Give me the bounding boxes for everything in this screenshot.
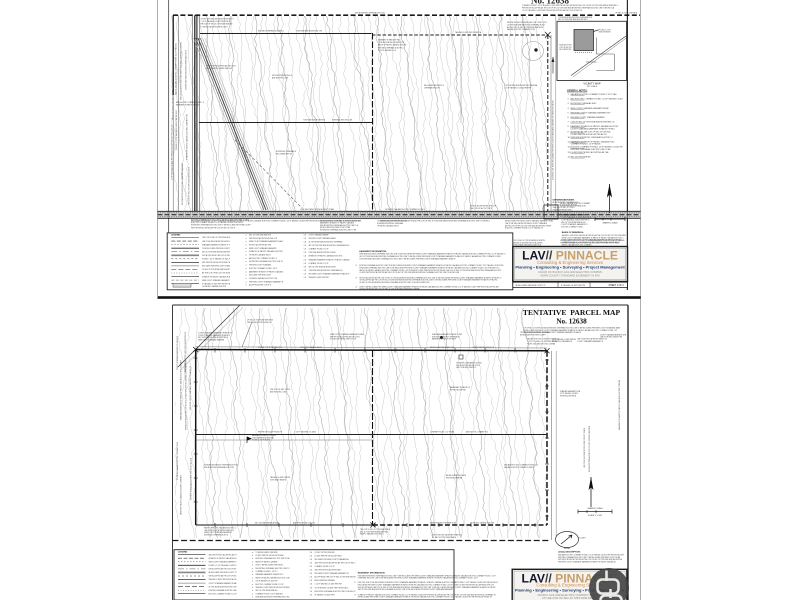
svg-text:o: o (245, 271, 246, 273)
svg-text:o: o (245, 285, 246, 287)
svg-text:ELECTRIC COMPANY FOUND 1: ELECTRIC COMPANY FOUND 1 (561, 226, 583, 229)
svg-text:PER PM 9097 ACCEPTED AS THE CO: PER PM 9097 ACCEPTED AS THE COR O (206, 65, 237, 68)
svg-text:T29S R26E MDB M: T29S R26E MDB M (270, 480, 286, 482)
svg-text:SEC 26 T29S R26E MDB M E: SEC 26 T29S R26E MDB M E (256, 590, 279, 592)
svg-text:LS 4825 PER PM 9097 ACCE: LS 4825 PER PM 9097 ACCE (472, 346, 495, 349)
svg-text:ELECTRIC COMPANY FOUND 1 1/2 I: ELECTRIC COMPANY FOUND 1 1/2 IP (256, 583, 285, 586)
svg-text:BE RELOCATED PER KERN: BE RELOCATED PER KERN (446, 474, 467, 477)
svg-text:IN FAVOR OF PACIFIC GAS AND EL: IN FAVOR OF PACIFIC GAS AND ELECTRIC (249, 250, 284, 253)
svg-text:TAGGED LS 4825 PER PM: TAGGED LS 4825 PER PM (309, 276, 329, 279)
svg-text:PER KERN COUNTY STANDARD EASEM: PER KERN COUNTY STANDARD EASEMENT IN (249, 280, 284, 283)
svg-text:RELOCATED PER: RELOCATED PER (559, 48, 572, 51)
svg-text:M EXISTING OVERHEAD ELECTRIC L: M EXISTING OVERHEAD ELECTRIC LINE TO BE (320, 228, 357, 231)
svg-text:RELOCATED PER KERN COUNTY STAN: RELOCATED PER KERN COUNTY STANDARD EA (315, 558, 350, 561)
svg-text:NO SCALE: NO SCALE (587, 85, 598, 88)
svg-text:AS THE COR OF SEC 26 T29S R26E: AS THE COR OF SEC 26 T29S R26E MDB M (542, 596, 598, 600)
svg-text:EXISTING OVERHEA: EXISTING OVERHEA (446, 477, 463, 480)
svg-text:STANDARD EASEMENT IN FAVOR OF: STANDARD EASEMENT IN FAVOR OF PACIFIC GA… (309, 258, 351, 261)
svg-text:SEC 26 T29S R26E MDB M EXISTIN: SEC 26 T29S R26E MDB M EXISTING OVERHEAD… (358, 588, 454, 591)
svg-text:9097 ACCEPTED AS THE COR OF SE: 9097 ACCEPTED AS THE COR OF SEC (209, 568, 238, 571)
svg-text:COUNTY STANDARD EASEMENT IN FA: COUNTY STANDARD EASEMENT IN FAVOR O (176, 336, 179, 370)
svg-text:ELECTRIC COMPANY FOUND 1 1/2 I: ELECTRIC COMPANY FOUND 1 1/2 IP (209, 592, 238, 595)
svg-text:DETAIL: DETAIL (564, 547, 570, 550)
svg-text:4825 PER PM 9097 ACCEPTED AS T: 4825 PER PM 9097 ACCEPTED AS T (315, 569, 343, 572)
svg-text:PACIFIC GAS AND ELECTRIC C: PACIFIC GAS AND ELECTRIC C (360, 533, 385, 536)
svg-text:Planning • Engineering • Surve: Planning • Engineering • Surveying • Pro… (515, 265, 625, 270)
svg-text:STANDARD EASEMENT IN FAVOR OF: STANDARD EASEMENT IN FAVOR OF P (256, 573, 285, 576)
svg-text:SHEET 1 OF 2: SHEET 1 OF 2 (609, 285, 625, 287)
svg-text:TO BE RELOCATED PER KERN: TO BE RELOCATED PER KERN (256, 551, 279, 554)
svg-text:T29S R26E MDB M EXISTING OVERH: T29S R26E MDB M EXISTING OVERH (309, 252, 337, 254)
svg-text:9097 ACCEPTED AS THE COR OF SE: 9097 ACCEPTED AS THE COR OF SEC (209, 575, 238, 578)
svg-text:o: o (252, 577, 253, 579)
svg-text:OWNER/SUBDIVIDER:: OWNER/SUBDIVIDER: (553, 200, 575, 202)
svg-text:FAVOR OF PACIFIC GAS AND ELECT: FAVOR OF PACIFIC GAS AND ELECTR (172, 89, 175, 120)
svg-text:OF PACIFIC GAS AND ELECTRIC CO: OF PACIFIC GAS AND ELECTRIC COM (249, 277, 277, 280)
svg-text:TAGGED LS 4825 PER PM 9097 A: TAGGED LS 4825 PER PM 9097 A (455, 31, 482, 34)
svg-text:o: o (252, 568, 253, 570)
svg-text:COMPANY FOUND 1 1/2 IP: COMPANY FOUND 1 1/2 IP (315, 565, 336, 568)
svg-text:o: o (245, 261, 246, 263)
svg-text:PER PM 9097 ACCEPTED AS TH: PER PM 9097 ACCEPTED AS TH (247, 321, 272, 324)
svg-text:IN FAVOR OF PACIFIC GAS AND EL: IN FAVOR OF PACIFIC GAS AND ELE (209, 557, 238, 560)
svg-text:MDB M EXISTING OVERHEAD ELECTR: MDB M EXISTING OVERHEAD ELECTRIC (355, 12, 386, 15)
svg-text:RELOCATED PER KERN CO: RELOCATED PER KERN CO (424, 84, 444, 87)
svg-text:o: o (245, 265, 246, 267)
svg-text:LEGEND:: LEGEND: (171, 235, 181, 237)
svg-text:EASEMENT INFORMATION:: EASEMENT INFORMATION: (359, 250, 387, 253)
svg-text:No. 12638: No. 12638 (556, 318, 587, 326)
svg-text:o: o (252, 581, 253, 583)
svg-text:PER PM 9097 ACCEPTED AS TH: PER PM 9097 ACCEPTED AS TH (258, 431, 283, 434)
svg-text:o: o (245, 281, 246, 283)
svg-text:FOUND 1 1/2 IP TAGGE: FOUND 1 1/2 IP TAGGE (252, 439, 271, 442)
svg-text:SEC 26 T29S R26E MDB M EXISTIN: SEC 26 T29S R26E MDB M EXISTING (202, 251, 231, 253)
svg-text:o: o (252, 590, 253, 592)
svg-text:VICINITY MAP: VICINITY MAP (583, 81, 601, 85)
svg-text:26 T29S R26E MDB M EXISTING OV: 26 T29S R26E MDB M EXISTING OVE (209, 586, 238, 588)
svg-text:R26E MDB M EXISTING OVERHEAD E: R26E MDB M EXISTING OVERHEAD ELECTRIC (256, 596, 291, 599)
svg-text:PER KERN COUNTY STANDARD EASEM: PER KERN COUNTY STANDARD EASEMENT IN FAV… (309, 273, 351, 276)
svg-text:ELECTRIC LINE TO BE RELOCATED: ELECTRIC LINE TO BE RELOCATED PER KERN C… (552, 99, 555, 180)
svg-text:GRAPHIC SCALE: GRAPHIC SCALE (587, 507, 603, 510)
svg-text:EASEMENT IN FAVOR OF: EASEMENT IN FAVOR OF (450, 386, 471, 389)
svg-text:OVERHEAD ELECTRIC LINE TO BE R: OVERHEAD ELECTRIC LINE TO BE RELOCATED P… (358, 577, 479, 580)
svg-text:KERN COUNTY STANDARD EASEMENT: KERN COUNTY STANDARD EASEMENT I (202, 279, 230, 282)
svg-text:OF PACIFIC GAS AND ELECTRIC CO: OF PACIFIC GAS AND ELECTRIC COMPANY FOUN… (385, 208, 425, 211)
svg-text:PER PM 9097 ACCEPTED AS THE CO: PER PM 9097 ACCEPTED AS THE COR OF SEC 2… (191, 226, 236, 229)
svg-text:AND ELECTRIC COMPANY FOUND 1 1: AND ELECTRIC COMPANY FOUND 1 1/ (176, 101, 204, 104)
svg-text:OF PACIFIC GAS AND ELECT: OF PACIFIC GAS AND ELECT (249, 254, 272, 257)
svg-text:COMPANY FOUND 1 1/2 IP TAG: COMPANY FOUND 1 1/2 IP TAG (430, 431, 455, 434)
svg-text:IP TAGGED LS 4825 PER PM 9097: IP TAGGED LS 4825 PER PM 9097 A (202, 282, 231, 285)
svg-text:9097 ACCEPTED AS THE COR OF SE: 9097 ACCEPTED AS THE COR OF SEC 26 T29S … (588, 425, 591, 472)
svg-text:o: o (252, 574, 253, 576)
svg-text:OVERHEAD ELECTRIC LINE TO BE R: OVERHEAD ELECTRIC LINE TO BE RELOCATED P… (184, 331, 187, 372)
svg-text:LINE TO BE RELOCATED P: LINE TO BE RELOCATED P (456, 366, 477, 369)
svg-text:9097 ACCEPTED AS THE COR OF: 9097 ACCEPTED AS THE COR OF (330, 338, 357, 341)
svg-text:9097 ACCEPTED AS THE COR OF SE: 9097 ACCEPTED AS THE COR OF SEC (202, 254, 231, 257)
svg-text:PER KERN COUNTY STANDARD EASEM: PER KERN COUNTY STANDARD EASEMENT IN FAV… (558, 561, 616, 564)
svg-text:EXISTING OVERHEAD ELECTRIC LIN: EXISTING OVERHEAD ELECTRIC LINE TO BE (256, 557, 291, 560)
svg-text:OF SEC 26 T29S R26E MDB M: OF SEC 26 T29S R26E MDB M (432, 537, 456, 539)
svg-text:TO BE RELOCATED PER KERN COUNT: TO BE RELOCATED PER KERN COUNT (201, 25, 229, 28)
svg-text:1 1/2 IP TAGGED LS 4: 1 1/2 IP TAGGED LS 4 (378, 49, 396, 52)
svg-text:COMPANY FOUND 1 1/2 IP TAGGE: COMPANY FOUND 1 1/2 IP TAGGE (571, 143, 602, 146)
svg-text:PM 9097 ACCEPTED: PM 9097 ACCEPTED (450, 389, 467, 392)
svg-text:1/2 IP TAGGED LS 4825 PER PM 9: 1/2 IP TAGGED LS 4825 PER PM 9097 ACC (315, 586, 350, 589)
svg-text:ELECTRIC COMPANY FOUND 1 1/2 I: ELECTRIC COMPANY FOUND 1 1/2 IP TAGGED L… (505, 227, 544, 230)
svg-text:o: o (245, 251, 246, 253)
svg-text:SEC 26 T29S R26E MD: SEC 26 T29S R26E MD (571, 157, 591, 159)
svg-text:EASEMENT IN FAVOR OF PACIF: EASEMENT IN FAVOR OF PACIF (432, 338, 457, 341)
svg-text:9097 ACCEPTED AS THE C: 9097 ACCEPTED AS THE C (553, 208, 574, 211)
svg-text:MDB M EXISTING OVERHEA: MDB M EXISTING OVERHEA (315, 579, 336, 582)
svg-text:EASEMENT IN FAVOR OF PACIFIC G: EASEMENT IN FAVOR OF PACIFIC GAS AND (249, 270, 284, 273)
svg-text:AND ELECTRIC COMPANY FOU: AND ELECTRIC COMPANY FOU (466, 431, 489, 434)
svg-text:EXISTING OVERHEAD ELECTRIC LIN: EXISTING OVERHEAD ELECTRIC LINE TO BE RE… (190, 457, 193, 500)
svg-text:o: o (252, 593, 253, 595)
svg-text:COR OF SEC 26 T29S R26E MDB M: COR OF SEC 26 T29S R26E MDB M EXISTING O… (571, 122, 616, 124)
svg-text:GAS AND ELECTRIC COMPANY FOUND: GAS AND ELECTRIC COMPANY FOUND 1 (504, 466, 534, 469)
svg-text:TAGGED LS 4825 PER PM 9097 ACC: TAGGED LS 4825 PER PM 9097 ACCE (209, 578, 238, 581)
svg-text:PER KERN COUNTY STANDARD EASEM: PER KERN COUNTY STANDARD EASEMENT IN FAV… (189, 365, 192, 410)
svg-text:ENGINEER/SURVEYOR:: ENGINEER/SURVEYOR: (561, 215, 585, 217)
svg-text:PER PM 9097 ACCEPTED AS THE CO: PER PM 9097 ACCEPTED AS THE COR (249, 237, 278, 240)
svg-text:PM 9097 ACCEPTED AS THE: PM 9097 ACCEPTED AS THE (249, 243, 272, 246)
svg-text:o: o (252, 561, 253, 563)
svg-text:9097 ACCEPTED AS THE COR OF SE: 9097 ACCEPTED AS THE COR OF SEC 26 T29S … (359, 288, 420, 291)
svg-text:LEGAL DESCRIPTION:: LEGAL DESCRIPTION: (558, 551, 581, 554)
svg-text:o: o (245, 238, 246, 240)
svg-text:T29S R26E MDB M EXISTING OVERH: T29S R26E MDB M EXISTING OVERHEAD ELE (309, 269, 344, 272)
svg-text:OF SEC 26 T29S R26E MD: OF SEC 26 T29S R26E MD (315, 552, 336, 554)
svg-text:o: o (252, 571, 253, 573)
svg-text:IN FAVOR OF PACIFIC GAS AND EL: IN FAVOR OF PACIFIC GAS AND ELE (202, 275, 231, 278)
svg-text:OF PACIFIC GAS AND ELECT: OF PACIFIC GAS AND ELECT (300, 346, 323, 349)
svg-text:OF PACIFIC GAS AND ELECTRI: OF PACIFIC GAS AND ELECTRI (202, 285, 226, 288)
svg-text:COUNTY STANDARD EASEME: COUNTY STANDARD EASEME (309, 233, 330, 236)
svg-text:M EXISTING OVERHEAD E: M EXISTING OVERHEAD E (276, 150, 297, 153)
svg-text:o: o (252, 555, 253, 557)
svg-text:KERN COUNTY STANDARD EASEMENT: KERN COUNTY STANDARD EASEMENT IN FAV (540, 273, 600, 277)
svg-text:TAGGED LS 4825 PER PM: TAGGED LS 4825 PER PM (270, 476, 290, 479)
svg-text:IN FAVOR OF PACIFIC GAS AND EL: IN FAVOR OF PACIFIC GAS AND ELECTRIC COM… (186, 113, 189, 160)
svg-text:ELECTRIC COMPANY FOUND 1 1/2 I: ELECTRIC COMPANY FOUND 1 1/2 IP TAGGED L… (191, 221, 243, 224)
svg-text:COUNTY STANDARD EASEMENT IN FA: COUNTY STANDARD EASEMENT IN FAV (209, 582, 238, 585)
svg-text:PM 9097 ACCEPTED A: PM 9097 ACCEPTED A (560, 394, 577, 397)
svg-text:LS 4825 PER PM 9097 ACCEPTED A: LS 4825 PER PM 9097 ACCEPTED AS (256, 554, 285, 557)
svg-text:STANDARD EASEMENT IN FAVOR OF: STANDARD EASEMENT IN FAVOR OF P (202, 243, 231, 246)
svg-text:AND ELECTRIC COM: AND ELECTRIC COM (272, 77, 288, 80)
svg-text:AS THE COR OF SEC 26 T29S R26E: AS THE COR OF SEC 26 T29S R26E (202, 272, 231, 275)
svg-text:OF SEC 26 T29S R26E MDB M EXIS: OF SEC 26 T29S R26E MDB M EXIST (202, 269, 231, 271)
svg-text:LS 4825 PER PM 9097 ACCEPTED A: LS 4825 PER PM 9097 ACCEPTED A (315, 554, 343, 557)
svg-text:COMPANY FOUND 1 1/2 IP T: COMPANY FOUND 1 1/2 IP T (256, 570, 279, 573)
svg-text:COUNTY STANDARD EASEMENT IN: COUNTY STANDARD EASEMENT IN (577, 340, 604, 343)
svg-text:26 T29S R26E MDB M EXISTING OV: 26 T29S R26E MDB M EXISTING OVERHEAD ELE… (185, 49, 188, 90)
svg-text:FAVOR OF PACIFIC GAS AND ELECT: FAVOR OF PACIFIC GAS AND ELECTRIC COM (256, 576, 290, 579)
svg-text:o: o (252, 552, 253, 554)
svg-text:T29S R26E MDB M EXISTING: T29S R26E MDB M EXISTING (303, 120, 326, 122)
svg-text:OF SEC 26 T29S R26E MDB: OF SEC 26 T29S R26E MDB (615, 13, 638, 15)
svg-text:T29S R26E MDB M EXISTING OVERH: T29S R26E MDB M EXISTING OVERHEAD ELECTR… (359, 257, 456, 260)
svg-text:OVERHEAD ELECTRIC LINE: OVERHEAD ELECTRIC LINE (332, 119, 353, 122)
svg-text:FAVOR OF PACIFIC GAS AND ELECT: FAVOR OF PACIFIC GAS AND ELECTR (378, 44, 407, 47)
svg-text:MDB M EXISTING OVERHEAD ELECTR: MDB M EXISTING OVERHEAD ELECTRIC (204, 466, 235, 469)
svg-text:THE COR OF SEC 26 T29S R26E MD: THE COR OF SEC 26 T29S R26E MDB (202, 237, 231, 239)
svg-text:1/2 IP TAGGED LS 4825 PE: 1/2 IP TAGGED LS 4825 PE (256, 580, 279, 583)
svg-text:PACIFIC GAS AND ELECTRIC COMPA: PACIFIC GAS AND ELECTRIC COMPANY FOUND 1… (175, 42, 178, 95)
svg-text:o: o (245, 268, 246, 270)
svg-text:RELOCATED PER KE: RELOCATED PER KE (276, 153, 293, 156)
svg-text:o: o (252, 597, 253, 599)
svg-text:LEGEND:: LEGEND: (178, 552, 188, 554)
svg-text:COUNTY STANDARD EASEMENT IN FA: COUNTY STANDARD EASEMENT IN FAVOR OF PAC… (571, 128, 615, 131)
svg-text:MDB M EXISTING: MDB M EXISTING (599, 32, 612, 34)
svg-text:FAVOR OF PACIFIC GAS AND ELECT: FAVOR OF PACIFIC GAS AND ELECTRIC COMPAN… (180, 474, 183, 515)
svg-text:THE COR OF SEC 26 T29S R26E MD: THE COR OF SEC 26 T29S R26E MDB M EXISTI (189, 167, 191, 205)
svg-text:1 1/2 IP TAGGED LS 4825: 1 1/2 IP TAGGED LS 4825 (294, 431, 316, 434)
svg-text:LS 4825 PER PM 9097 ACCEPTED A: LS 4825 PER PM 9097 ACCEPTED AS TH (571, 133, 607, 136)
svg-text:ACCEPTED AS THE COR OF S: ACCEPTED AS THE COR OF S (293, 521, 316, 524)
svg-text:PER KERN COUNTY STANDARD: PER KERN COUNTY STANDARD (249, 264, 272, 267)
svg-text:o: o (245, 275, 246, 277)
svg-text:EASEMENT IN FAVOR OF PACIFIC G: EASEMENT IN FAVOR OF PACIFIC GAS AND ELE… (618, 379, 621, 430)
svg-text:THE COR OF SEC 26 T29S R26E MD: THE COR OF SEC 26 T29S R26E MDB M EXISTI… (180, 41, 183, 100)
svg-text:AND ELECTRIC COM: AND ELECTRIC COM (270, 391, 286, 394)
svg-text:4825 PER PM 9097 ACCEPTED AS T: 4825 PER PM 9097 ACCEPTED AS TH (202, 261, 231, 264)
svg-text:COMPANY FOUND 1 1/2 IP: COMPANY FOUND 1 1/2 IP (309, 262, 330, 265)
svg-text:M EXISTING OVERHEAD ELECTR: M EXISTING OVERHEAD ELECTR (204, 533, 229, 536)
svg-text:IN FAVOR OF PACIFIC GAS AND EL: IN FAVOR OF PACIFIC GAS AND ELECTRIC (309, 255, 344, 258)
svg-text:EXISTING OVERHEAD ELECTRIC L: EXISTING OVERHEAD ELECTRIC L (378, 46, 404, 49)
svg-text:SCALE 1" = 200': SCALE 1" = 200' (588, 514, 603, 517)
svg-text:TO BE RELOCATED PER KERN COU: TO BE RELOCATED PER KERN COU (378, 41, 405, 44)
svg-text:BE RELOCATED PER KERN COUNTY S: BE RELOCATED PER KERN COUNTY ST (209, 571, 238, 574)
svg-text:LINE TO BE RELOCATED PER KERN: LINE TO BE RELOCATED PER KERN C (256, 564, 285, 567)
svg-text:OVERHEAD ELECTRI: OVERHEAD ELECTRI (424, 87, 440, 90)
svg-text:SEC 26 T29S R26E MDB M EXISTIN: SEC 26 T29S R26E MDB M EXISTING OVERHEAD… (309, 244, 351, 247)
svg-text:KERN COUNTY STANDARD EASEMENT: KERN COUNTY STANDARD EASEMENT I (209, 561, 237, 564)
svg-text:T29S R26E MDB M EXISTING OVE: T29S R26E MDB M EXISTING OVE (296, 30, 323, 32)
svg-text:o: o (252, 587, 253, 589)
svg-text:4825 PER PM 9097 ACCEPTED AS T: 4825 PER PM 9097 ACCEPTED AS TH (209, 553, 238, 556)
svg-text:KERN COUNTY STANDARD EASEMEN: KERN COUNTY STANDARD EASEMEN (198, 338, 225, 341)
svg-text:RELOCATED PER KERN COUNTY STAN: RELOCATED PER KERN COUNTY STAND (202, 265, 231, 268)
svg-text:1 1/2 IP TAGGED LS 4825 PER PM: 1 1/2 IP TAGGED LS 4825 PER PM (315, 583, 342, 586)
svg-text:IP TAGGED LS 4825 PER PM: IP TAGGED LS 4825 PER PM (561, 284, 585, 287)
svg-text:EASEMENT IN FAVOR OF PACIF: EASEMENT IN FAVOR OF PACIF (176, 104, 201, 107)
svg-text:EXISTING OVERHEAD ELECTRIC LIN: EXISTING OVERHEAD ELECTRIC LINE TO BE (571, 148, 612, 151)
svg-text:SEC 26 T29S R26E MDB M E: SEC 26 T29S R26E MDB M E (249, 234, 272, 236)
svg-text:EXISTING OVERHEAD ELECTRIC LIN: EXISTING OVERHEAD ELECTRIC LINE TO BE RE… (561, 241, 620, 244)
svg-text:4825 PER PM 9097 ACCEPTED AS T: 4825 PER PM 9097 ACCEPTED AS THE COR OF … (315, 561, 356, 564)
svg-text:KERN COUNTY STANDARD EASEMENT: KERN COUNTY STANDARD EASEMENT IN FAVO (249, 240, 283, 243)
svg-text:PER KERN COUNTY STANDARD EASEM: PER KERN COUNTY STANDARD EASEMENT IN (315, 572, 350, 575)
svg-text:EXISTING OVERHEAD ELECTRIC LIN: EXISTING OVERHEAD ELECTRIC LINE TO BE RE… (191, 219, 250, 222)
svg-text:o: o (245, 255, 246, 257)
svg-text:RELOCATED PER KERN COUNT: RELOCATED PER KERN COUNT (249, 274, 272, 277)
svg-text:IP TAGGED LS 4825 PER: IP TAGGED LS 4825 PER (315, 593, 336, 596)
svg-text:BE RELOCATED PER KERN COUNTY: BE RELOCATED PER KERN COUNTY (520, 333, 547, 336)
svg-text:COMPANY FOUND 1 1/2 IP TAGGED: COMPANY FOUND 1 1/2 IP TAGGED L (256, 592, 284, 595)
svg-text:FOUND 1 1/2 IP TAGGED LS 4825: FOUND 1 1/2 IP TAGGED LS 4825 P (202, 258, 231, 261)
svg-text:o: o (245, 248, 246, 250)
svg-text:BASIS OF BEARINGS:: BASIS OF BEARINGS: (562, 231, 584, 234)
svg-text:RELOCATED PER KERN COUNTY STAN: RELOCATED PER KERN COUNTY STANDARD EASEM… (181, 162, 184, 205)
svg-text:TO BE RELOCATED PER KERN COUNT: TO BE RELOCATED PER KERN COUNTY (202, 247, 231, 250)
svg-text:LINE TO BE RELOCATED PER KER: LINE TO BE RELOCATED PER KER (206, 67, 233, 70)
svg-text:FOUND 1 1/2 IP TAGGED LS 4: FOUND 1 1/2 IP TAGGED LS 4 (258, 346, 282, 349)
svg-text:PER KERN COUNTY STANDARD EASEM: PER KERN COUNTY STANDARD EASEM (309, 237, 336, 240)
svg-text:AND ELECTRIC COMPANY FOUND 1 1: AND ELECTRIC COMPANY FOUND 1 1/ (249, 257, 277, 260)
svg-text:FAVOR OF PACIFIC GAS AND: FAVOR OF PACIFIC GAS AND (256, 560, 279, 563)
svg-text:ACCEPTED AS THE COR OF SEC 26: ACCEPTED AS THE COR OF SEC 26 T29S R26E … (315, 576, 356, 579)
svg-text:EASEMENT IN FAVOR OF PAC: EASEMENT IN FAVOR OF PAC (378, 39, 401, 42)
svg-text:o: o (252, 558, 253, 560)
svg-text:o: o (252, 565, 253, 567)
svg-text:BE RELOCATED PER KERN COUNTY S: BE RELOCATED PER KERN COUNTY STANDARD EA… (358, 596, 493, 599)
svg-text:o: o (252, 584, 253, 586)
svg-text:OF PACIFIC GAS AND ELECTRI: OF PACIFIC GAS AND ELECTRI (470, 521, 494, 524)
svg-text:1 1/2 IP TAGGED LS 4825 PER PM: 1 1/2 IP TAGGED LS 4825 PER PM 90 (201, 20, 231, 23)
svg-text:BE RELOCATED PER KERN COUN: BE RELOCATED PER KERN COUN (430, 346, 455, 349)
svg-text:M EXISTING OVERHEAD ELECTRIC L: M EXISTING OVERHEAD ELECTRIC LINE TO (249, 260, 284, 263)
svg-text:FOUND 1 1/2 IP TAGGED LS 4825: FOUND 1 1/2 IP TAGGED LS 4825 P (209, 564, 238, 567)
svg-text:M EXISTING OVERHEAD ELECTRIC L: M EXISTING OVERHEAD ELECTRIC LINE TO (256, 567, 291, 570)
svg-text:EASEMENT INFORMATION:: EASEMENT INFORMATION: (358, 572, 386, 575)
svg-text:MDB M EXISTING OVERHEAD ELEC: MDB M EXISTING OVERHEAD ELEC (430, 521, 457, 524)
svg-text:M EXISTING OVERHEAD ELECTRIC L: M EXISTING OVERHEAD ELECTRIC LINE TO BE … (191, 224, 252, 227)
svg-text:COMPANY FOUND 1 1/2 IP: COMPANY FOUND 1 1/2 IP (309, 248, 330, 251)
svg-text:o: o (245, 258, 246, 260)
svg-text:FOUND 1 1/2 IP TAGGED LS 4825: FOUND 1 1/2 IP TAGGED LS 4825 PER PM 909… (175, 110, 178, 150)
svg-text:LINE TO BE RELOCATED PER: LINE TO BE RELOCATED PER (600, 336, 623, 339)
svg-text:LS 4825 PER PM 9097 ACCEPTED A: LS 4825 PER PM 9097 ACCEPTED AS THE COR … (359, 271, 460, 274)
svg-text:THE COR OF SEC 26 T29S R: THE COR OF SEC 26 T29S R (470, 208, 493, 210)
svg-text:GRAPHIC SCALE: GRAPHIC SCALE (602, 221, 618, 224)
svg-text:SEC 26 T29S R26E MDB M EXISTIN: SEC 26 T29S R26E MDB M EXISTIN (309, 266, 337, 268)
svg-text:o: o (245, 278, 246, 280)
svg-text:M EXISTING OVERHEAD ELECTRIC L: M EXISTING OVERHEAD ELECTRIC LINE TO BE … (315, 590, 357, 593)
svg-text:1/2 IP TAGGED LS 4825 PER PM 9: 1/2 IP TAGGED LS 4825 PER PM 9097 ACCEPT… (171, 124, 174, 180)
svg-text:1 1/2 IP TAGGED LS 4825 PER PM: 1 1/2 IP TAGGED LS 4825 PER PM 9097 ACCE… (522, 9, 582, 12)
svg-text:4825 PER PM 9097 ACCE: 4825 PER PM 9097 ACCE (272, 74, 293, 77)
svg-text:ELECTRIC COMPANY FOUND 1 1/2 I: ELECTRIC COMPANY FOUND 1 1/2 IP (249, 267, 278, 270)
svg-text:TENTATIVE PARCEL MAP: TENTATIVE PARCEL MAP (523, 308, 621, 317)
svg-text:TO BE RELOCATED PER KERN COUNT: TO BE RELOCATED PER KERN COUNTY STAND (300, 208, 335, 211)
svg-text:o: o (245, 234, 246, 236)
svg-text:OF PACIFIC GAS AND ELECT: OF PACIFIC GAS AND ELECT (377, 224, 400, 227)
svg-text:26 T29S R26E MDB M EXISTING OV: 26 T29S R26E MDB M EXISTING OVERHEAD (309, 241, 344, 244)
svg-text:ACCEPTED AS THE COR OF S: ACCEPTED AS THE COR OF S (249, 284, 272, 287)
svg-text:M EXISTING OVERHEAD ELE: M EXISTING OVERHEAD ELE (552, 340, 573, 343)
svg-text:OF SEC 26 T29S R26E MDB M EXIS: OF SEC 26 T29S R26E MDB M EXISTING OVERH… (359, 281, 430, 284)
svg-text:o: o (245, 244, 246, 246)
svg-text:KERN COUNTY STANDARD EASEMENT: KERN COUNTY STANDARD EASEMENT I (249, 247, 277, 250)
svg-text:o: o (245, 241, 246, 243)
svg-text:TAGGED LS 4825 PER PM 9097 ACC: TAGGED LS 4825 PER PM 9097 ACCEPTED A (256, 586, 291, 589)
svg-text:EXISTING OVERHEAD ELECTRIC L: EXISTING OVERHEAD ELECTRIC L (258, 29, 284, 32)
svg-text:LINE TO BE RELOCATED PER KERN: LINE TO BE RELOCATED PER KERN COUNTY STA… (583, 427, 586, 468)
svg-text:OF PACIFIC GAS AND ELECTRIC CO: OF PACIFIC GAS AND ELECTRIC COMPANY FOUN (176, 441, 179, 480)
svg-text:SEC 26 T29S R26E MDB M EXI: SEC 26 T29S R26E MDB M EXI (255, 522, 279, 524)
svg-text:BE RELOCATED PER KERN COUNTY S: BE RELOCATED PER KERN COUNTY ST (516, 284, 547, 287)
svg-text:LINE TO BE RELOCATED PER KERN: LINE TO BE RELOCATED PER KERN C (202, 240, 231, 243)
svg-text:EXISTING OVERHEAD ELECTRIC LIN: EXISTING OVERHEAD ELECTRIC LINE (209, 589, 238, 592)
svg-text:GAS AND ELECTRIC COMPANY FOUND: GAS AND ELECTRIC COMPANY FOUND (507, 28, 536, 31)
svg-text:1/2 IP TAGGED LS 4825 PER PM: 1/2 IP TAGGED LS 4825 PER PM (505, 87, 531, 90)
svg-text:STANDARD EASEMENT IN FAVOR OF: STANDARD EASEMENT IN FAVOR OF PACIFIC GA… (180, 359, 183, 420)
